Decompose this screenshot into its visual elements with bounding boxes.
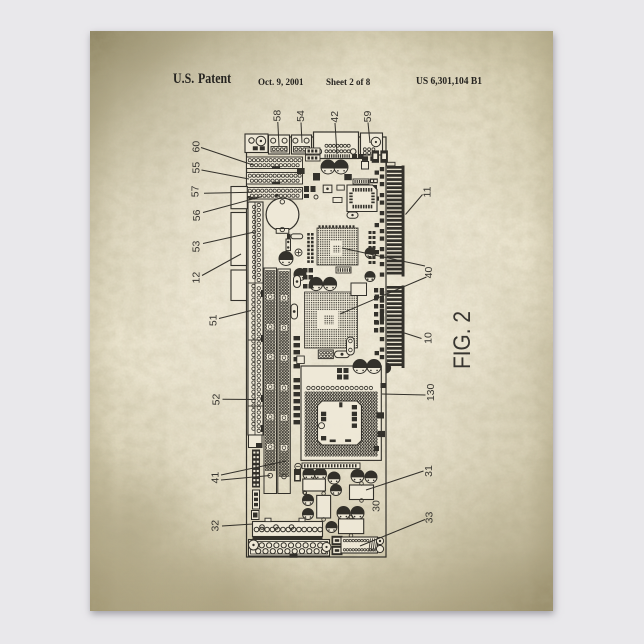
svg-text:54: 54 [295, 110, 307, 122]
svg-text:40: 40 [423, 267, 435, 279]
svg-text:11: 11 [422, 186, 434, 197]
svg-text:10: 10 [423, 332, 435, 344]
svg-text:41: 41 [210, 472, 222, 484]
svg-text:12: 12 [191, 272, 203, 284]
svg-text:59: 59 [362, 111, 374, 123]
svg-text:60: 60 [191, 141, 203, 153]
svg-text:32: 32 [210, 520, 222, 532]
svg-text:30: 30 [371, 500, 383, 512]
svg-text:33: 33 [424, 512, 436, 524]
svg-text:51: 51 [208, 314, 220, 326]
svg-text:55: 55 [191, 162, 203, 174]
svg-text:130: 130 [425, 383, 437, 401]
svg-text:31: 31 [423, 465, 435, 477]
svg-text:58: 58 [271, 110, 283, 122]
svg-text:56: 56 [191, 209, 203, 221]
svg-text:52: 52 [211, 394, 223, 406]
svg-text:FIG. 2: FIG. 2 [449, 311, 476, 369]
svg-text:57: 57 [190, 185, 202, 197]
svg-text:53: 53 [191, 241, 203, 253]
svg-text:42: 42 [329, 111, 341, 123]
